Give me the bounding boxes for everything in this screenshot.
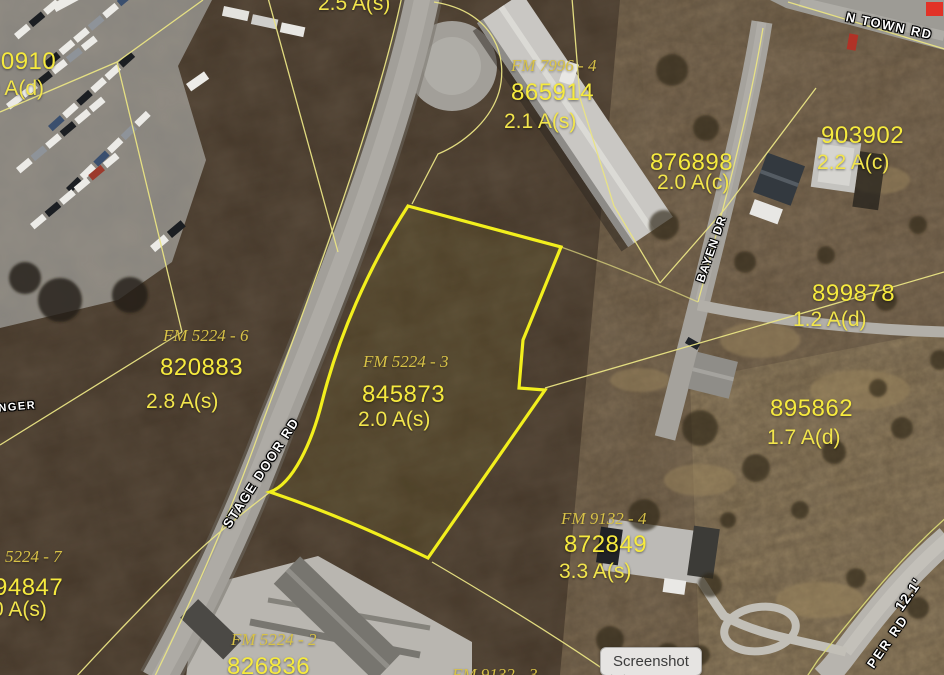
screenshot-tooltip: Screenshot [600, 647, 702, 675]
parcel-fm-label: FM 5224 - 2 [231, 631, 316, 648]
screenshot-tooltip-text: Screenshot [613, 653, 689, 670]
parcel-id-label: 903902 [821, 124, 904, 148]
parcel-id-label: 899878 [812, 282, 895, 306]
parcel-acreage-label: 2.2 A(c) [817, 152, 889, 173]
parcel-acreage-label: 1.7 A(d) [767, 427, 841, 448]
parcel-id-label: 895862 [770, 397, 853, 421]
parcel-id-label: 94847 [0, 576, 63, 600]
parcel-acreage-label: 2.0 A(s) [358, 409, 430, 430]
parcel-fm-label: FM 5224 - 3 [363, 353, 448, 370]
parcel-acreage-label: 0 A(s) [0, 599, 47, 620]
parcel-fm-label: FM 9132 - 4 [561, 510, 646, 527]
red-square-marker[interactable] [926, 2, 943, 16]
parcel-fm-label: FM 9132 - 3 [452, 666, 537, 675]
parcel-id-label: 872849 [564, 533, 647, 557]
parcel-acreage-label: 3.3 A(s) [559, 561, 631, 582]
aerial-imagery [0, 0, 944, 675]
parcel-acreage-label: 2.5 A(s) [318, 0, 390, 14]
parcel-fm-label: 5224 - 7 [5, 548, 62, 565]
map-canvas[interactable]: 00910 0 A(d) 2.5 A(s) FM 7996 - 4 865914… [0, 0, 944, 675]
parcel-id-label: 845873 [362, 383, 445, 407]
parcel-acreage-label: 2.1 A(s) [504, 111, 576, 132]
parcel-fm-label: FM 7996 - 4 [511, 57, 596, 74]
parcel-acreage-label: 2.0 A(c) [657, 172, 729, 193]
parcel-id-label: 820883 [160, 356, 243, 380]
parcel-id-label: 00910 [0, 50, 56, 74]
parcel-acreage-label: 1.2 A(d) [793, 309, 867, 330]
parcel-id-label: 865914 [511, 81, 594, 105]
parcel-fm-label: FM 5224 - 6 [163, 327, 248, 344]
parcel-acreage-label: 0 A(d) [0, 78, 44, 99]
parcel-id-label: 826836 [227, 655, 310, 675]
parcel-acreage-label: 2.8 A(s) [146, 391, 218, 412]
